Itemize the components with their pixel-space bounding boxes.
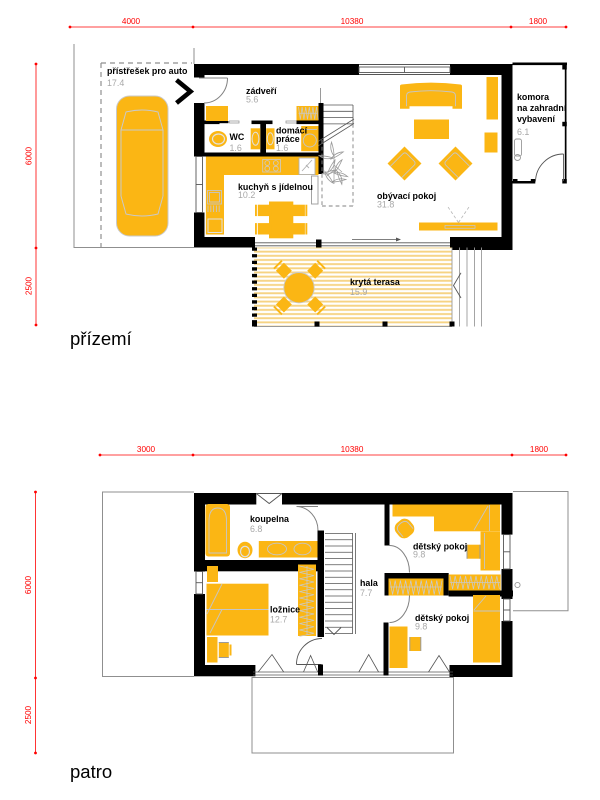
svg-text:9.8: 9.8 [413,550,425,560]
svg-text:koupelna: koupelna [250,514,289,524]
svg-text:6000: 6000 [25,146,34,165]
svg-text:7.7: 7.7 [360,588,372,598]
svg-text:3000: 3000 [137,445,156,454]
svg-text:5.6: 5.6 [246,95,258,105]
svg-text:krytá terasa: krytá terasa [350,277,400,287]
svg-text:17.4: 17.4 [107,78,124,88]
svg-text:4000: 4000 [122,17,141,26]
svg-text:hala: hala [360,578,378,588]
svg-text:31.8: 31.8 [377,200,394,210]
svg-text:10.2: 10.2 [238,190,255,200]
svg-text:přízemí: přízemí [70,328,133,349]
svg-text:WC: WC [230,132,245,142]
svg-text:10380: 10380 [341,445,364,454]
svg-text:na zahradní: na zahradní [517,103,567,113]
svg-text:1.6: 1.6 [230,143,242,153]
svg-text:6.1: 6.1 [517,127,529,137]
svg-text:přístřešek pro auto: přístřešek pro auto [107,66,188,76]
svg-text:12.7: 12.7 [270,615,287,625]
svg-text:1.6: 1.6 [276,143,288,153]
svg-text:patro: patro [70,761,112,782]
svg-text:2500: 2500 [25,276,34,295]
svg-text:1800: 1800 [530,445,549,454]
svg-text:15.9: 15.9 [350,287,367,297]
svg-text:komora: komora [517,92,549,102]
svg-text:10380: 10380 [341,17,364,26]
svg-text:6.8: 6.8 [250,524,262,534]
svg-text:1800: 1800 [529,17,548,26]
svg-text:9.8: 9.8 [415,622,427,632]
svg-text:vybavení: vybavení [517,114,556,124]
svg-text:ložnice: ložnice [270,605,300,615]
svg-text:2500: 2500 [24,705,33,724]
svg-text:6000: 6000 [24,575,33,594]
